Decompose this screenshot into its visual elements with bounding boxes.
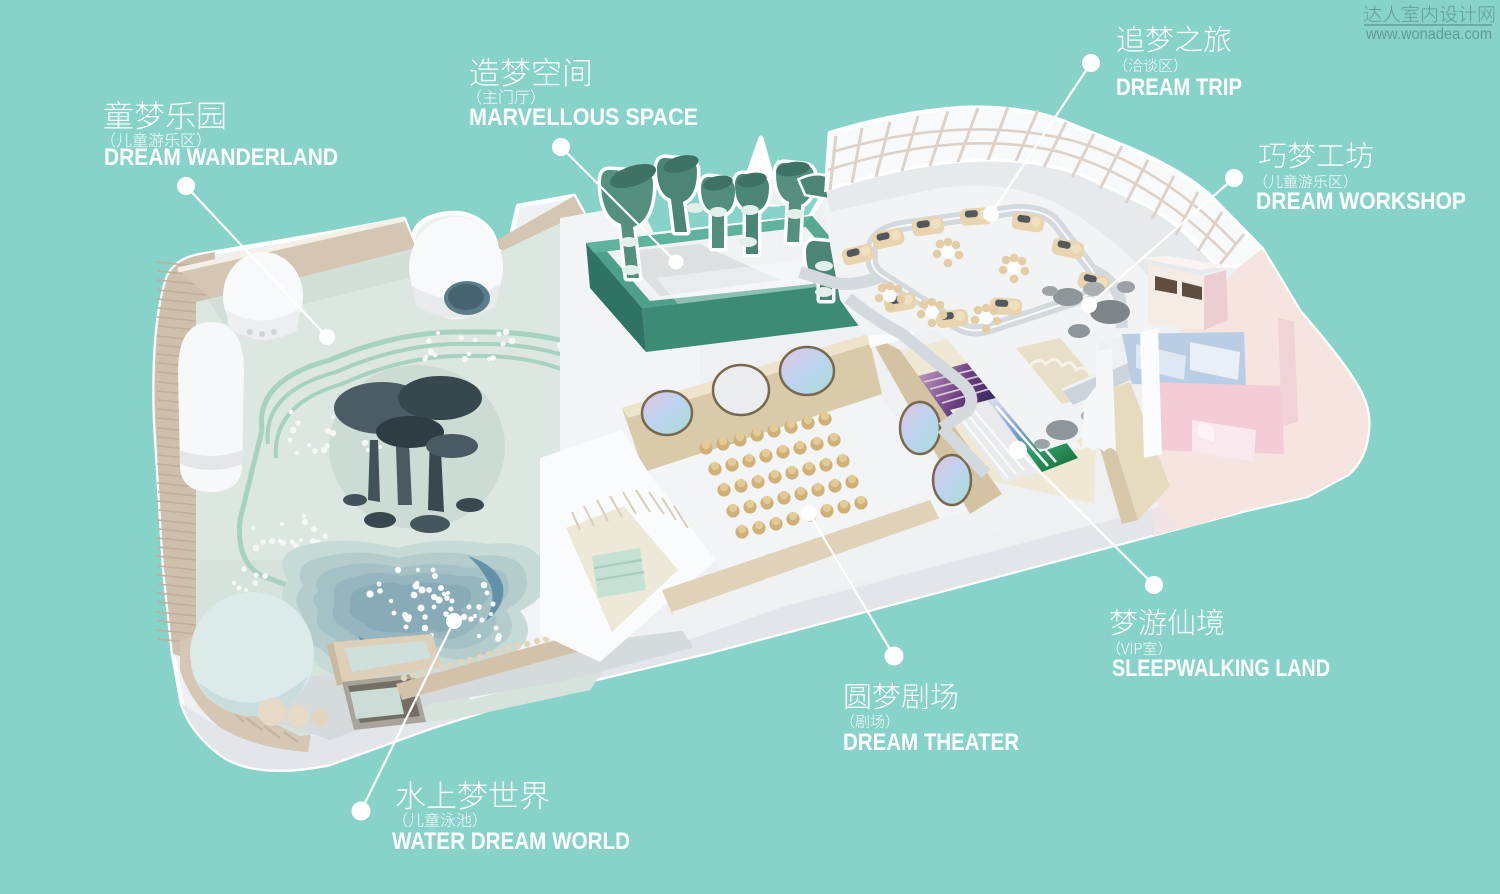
svg-text:DREAM WORKSHOP: DREAM WORKSHOP xyxy=(1256,188,1466,215)
svg-text:WATER DREAM WORLD: WATER DREAM WORLD xyxy=(392,828,630,855)
svg-text:DREAM TRIP: DREAM TRIP xyxy=(1116,74,1242,101)
svg-text:DREAM WANDERLAND: DREAM WANDERLAND xyxy=(104,144,338,171)
svg-text:www.wonadea.com: www.wonadea.com xyxy=(1365,26,1492,43)
svg-text:MARVELLOUS SPACE: MARVELLOUS SPACE xyxy=(469,104,698,131)
svg-text:SLEEPWALKING LAND: SLEEPWALKING LAND xyxy=(1112,655,1330,682)
svg-text:DREAM THEATER: DREAM THEATER xyxy=(843,729,1019,756)
